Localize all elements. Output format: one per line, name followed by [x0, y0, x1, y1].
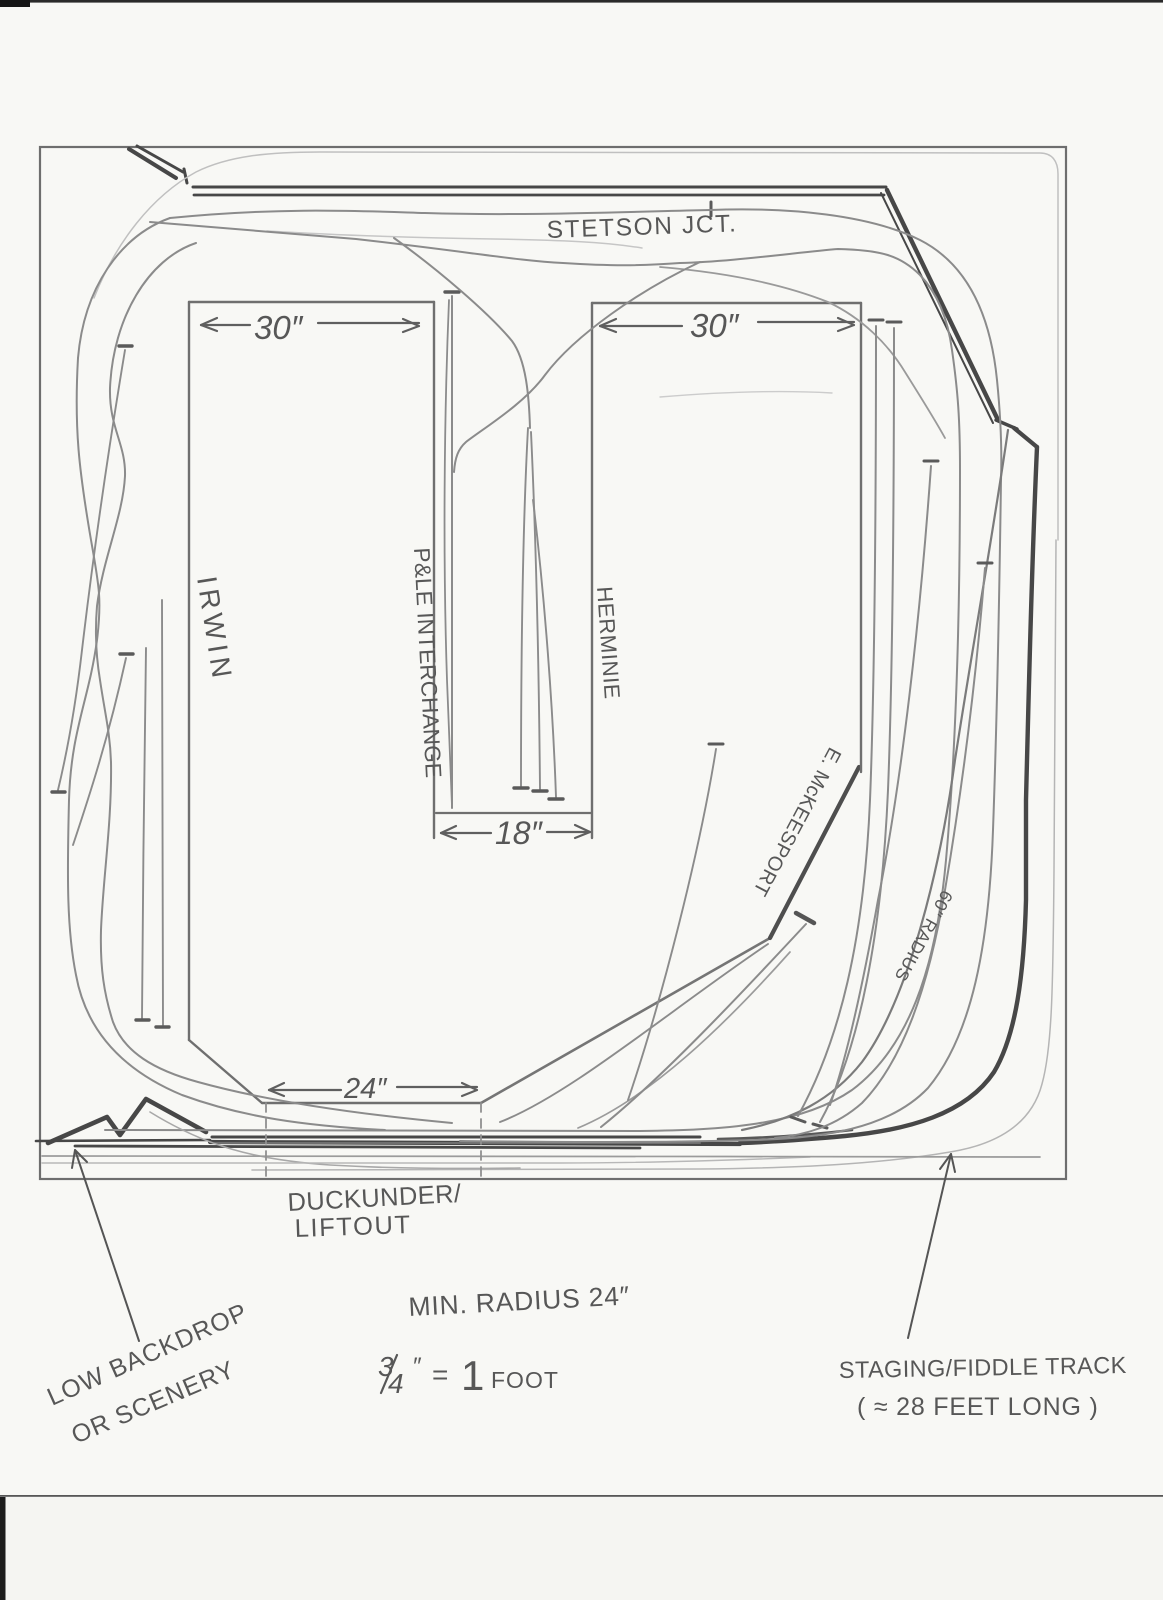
svg-text:( ≈ 28 FEET LONG ): ( ≈ 28 FEET LONG )	[857, 1393, 1099, 1421]
svg-text:30″: 30″	[254, 309, 304, 346]
svg-text:FOOT: FOOT	[491, 1367, 559, 1393]
svg-text:1: 1	[461, 1352, 484, 1399]
svg-text:STAGING/FIDDLE TRACK: STAGING/FIDDLE TRACK	[839, 1352, 1127, 1383]
svg-text:18″: 18″	[495, 815, 544, 851]
svg-text:30″: 30″	[690, 307, 740, 344]
svg-text:4: 4	[388, 1368, 404, 1399]
svg-text:24″: 24″	[343, 1073, 388, 1105]
svg-text:=: =	[432, 1359, 448, 1390]
svg-text:LIFTOUT: LIFTOUT	[294, 1211, 412, 1243]
